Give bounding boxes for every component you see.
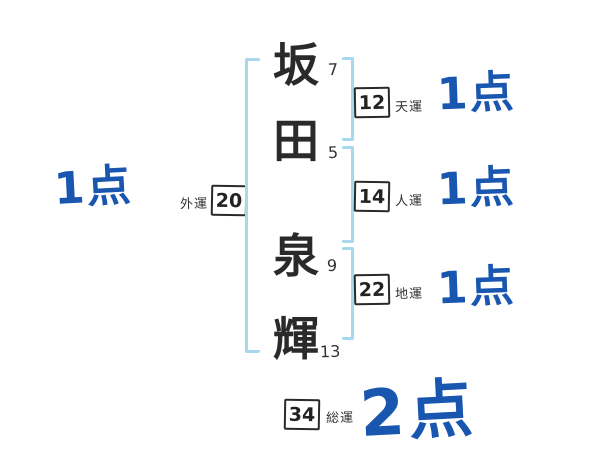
full-name-bracket xyxy=(245,58,260,353)
strokes-char-2: 5 xyxy=(328,145,339,161)
chiun-label: 地運 xyxy=(395,283,423,302)
tenun-value-box: 12 xyxy=(354,87,391,119)
tenun-bracket xyxy=(342,57,354,141)
tenun-score: 1点 xyxy=(436,71,516,118)
gaiun-value-box: 20 xyxy=(211,185,248,217)
souun-value-box: 34 xyxy=(284,399,321,431)
chiun-bracket xyxy=(342,247,354,340)
jinun-label: 人運 xyxy=(395,190,423,209)
chiun-score: 1点 xyxy=(436,265,516,312)
strokes-char-1: 7 xyxy=(328,62,339,78)
name-char-2: 田 xyxy=(268,118,324,164)
strokes-char-3: 9 xyxy=(327,258,338,274)
gaiun-score: 1点 xyxy=(53,164,134,212)
jinun-bracket xyxy=(342,146,354,243)
gaiun-label: 外運 xyxy=(180,193,208,212)
name-char-3: 泉 xyxy=(268,233,324,279)
name-fortune-diagram: 1点 外運 20 坂 田 泉 輝 7 5 9 13 12 天運 14 人運 22… xyxy=(0,0,600,470)
tenun-label: 天運 xyxy=(395,96,423,115)
souun-label: 総運 xyxy=(326,407,354,426)
souun-score: 2点 xyxy=(358,377,478,447)
jinun-score: 1点 xyxy=(436,166,516,213)
name-char-1: 坂 xyxy=(268,42,324,88)
strokes-char-4: 13 xyxy=(320,344,341,361)
chiun-value-box: 22 xyxy=(354,274,391,306)
jinun-value-box: 14 xyxy=(354,181,391,213)
name-char-4: 輝 xyxy=(268,316,324,362)
